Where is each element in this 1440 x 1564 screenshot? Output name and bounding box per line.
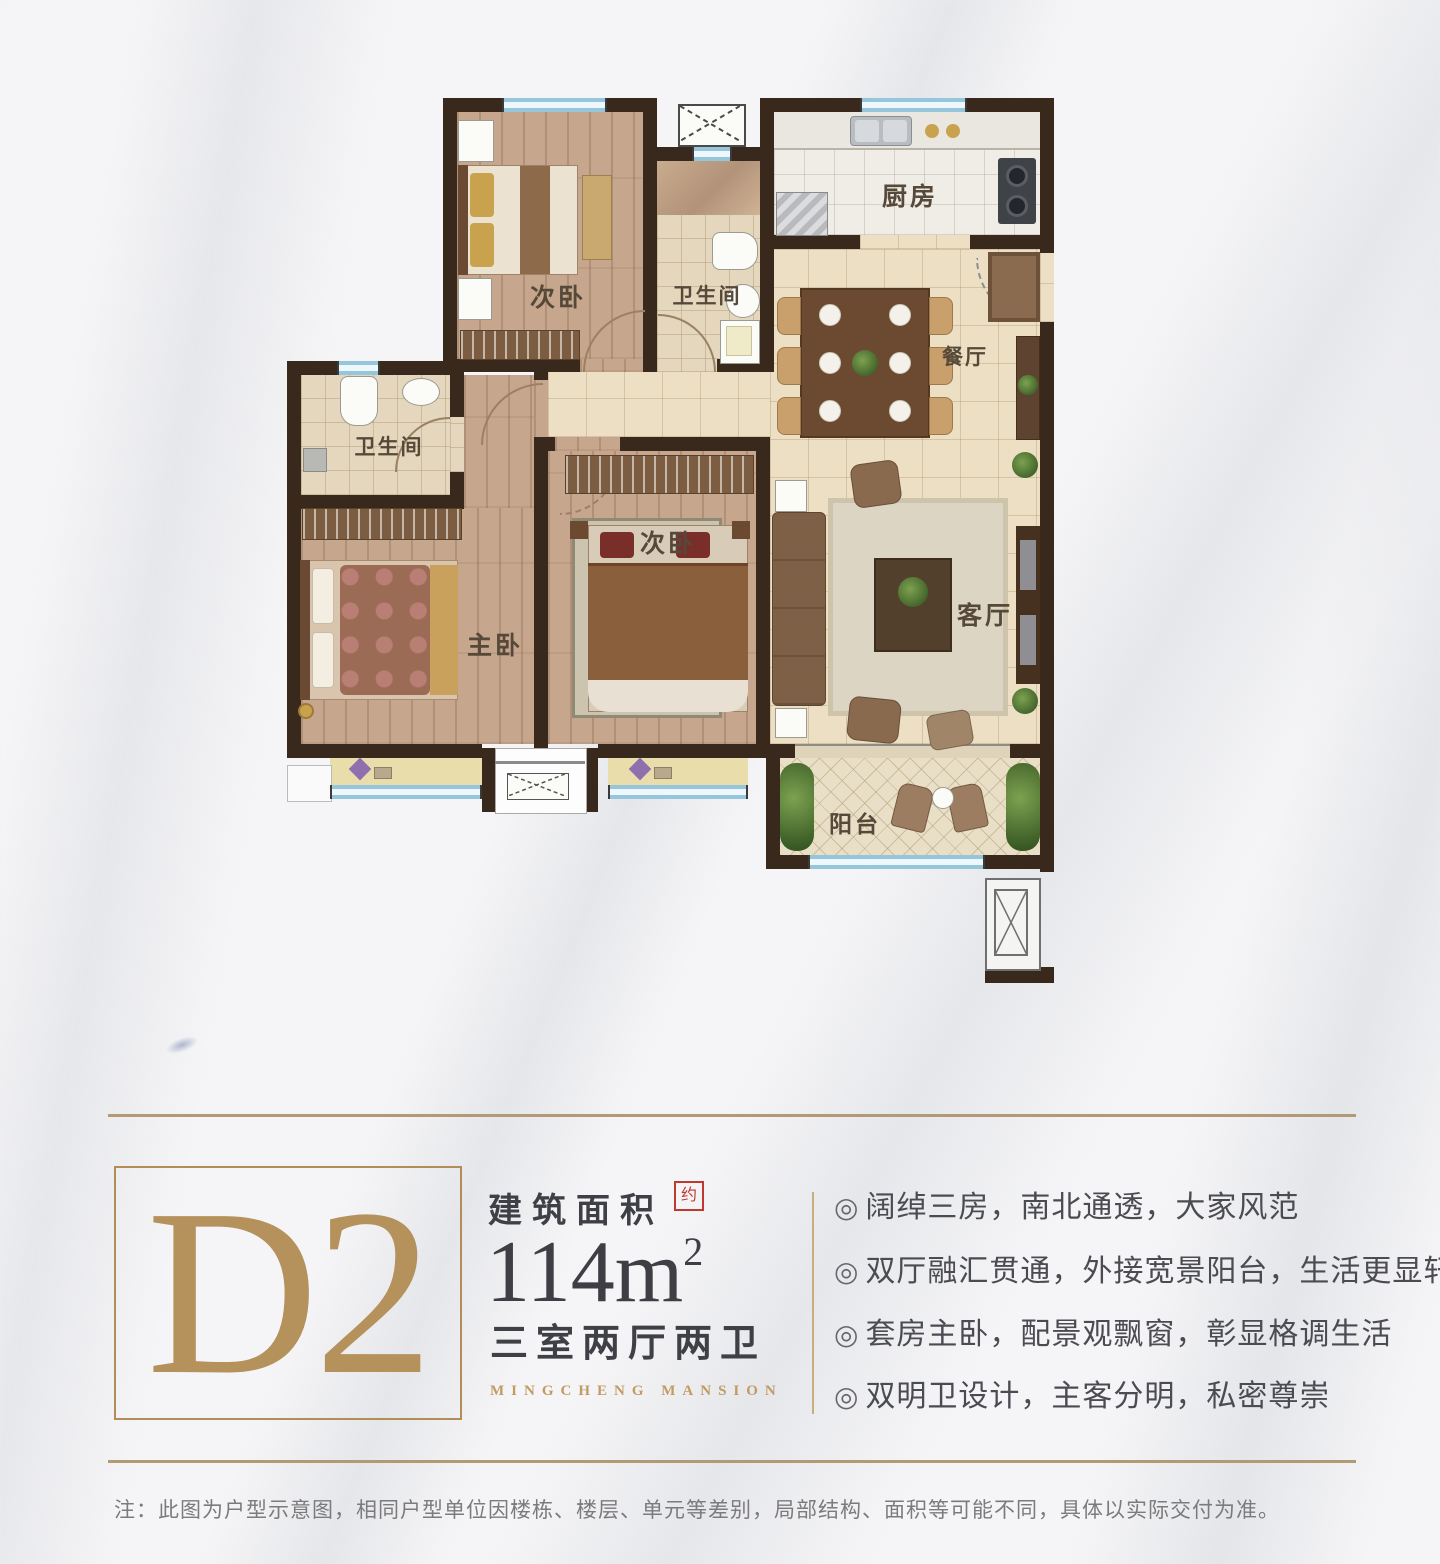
- side-table: [775, 480, 807, 512]
- project-name-en: MINGCHENG MANSION: [490, 1383, 783, 1400]
- wall: [534, 445, 548, 758]
- plant: [1018, 375, 1038, 395]
- area-number: 114m: [486, 1224, 683, 1321]
- balcony-threshold: [795, 744, 1010, 758]
- wall: [770, 744, 795, 758]
- pillow: [600, 532, 634, 558]
- wall: [643, 98, 657, 372]
- pillow: [470, 173, 494, 217]
- wall: [620, 437, 770, 451]
- bay-box-rail: [495, 761, 585, 764]
- shaft-top-icon: [678, 104, 746, 147]
- room-label-bathroom-master: 卫生间: [355, 431, 424, 461]
- pouf: [925, 708, 975, 751]
- bed-foot: [588, 680, 748, 712]
- unit-code: D2: [147, 1178, 430, 1408]
- x-box-icon: [987, 880, 1035, 965]
- bay-stool: [374, 767, 392, 779]
- plant: [1012, 688, 1038, 714]
- x-box-icon: [680, 106, 740, 141]
- bench: [582, 175, 612, 260]
- dining-chair: [777, 297, 801, 335]
- wall: [756, 437, 770, 758]
- bullet-icon: ◎: [834, 1319, 859, 1350]
- wardrobe: [302, 508, 462, 540]
- plate: [819, 304, 841, 326]
- plate: [889, 304, 911, 326]
- bed-runner: [520, 166, 550, 274]
- bay-x-icon: [507, 773, 569, 800]
- feature-text: 阔绰三房，南北通透，大家风范: [865, 1191, 1299, 1224]
- area-exponent: 2: [683, 1229, 703, 1274]
- divider-vertical: [812, 1192, 814, 1414]
- toilet: [340, 376, 378, 426]
- shower-tray-inner: [726, 326, 752, 356]
- divider-line-bottom: [108, 1460, 1356, 1463]
- entry-rug: [988, 252, 1040, 322]
- wall: [450, 472, 464, 509]
- toilet: [712, 232, 758, 270]
- nightstand: [458, 120, 494, 162]
- feature-item: ◎阔绰三房，南北通透，大家风范: [834, 1182, 1299, 1226]
- approx-seal: 约: [674, 1181, 704, 1211]
- divider-line-top: [108, 1114, 1356, 1117]
- wall: [766, 758, 780, 869]
- disclaimer-note: 注：此图为户型示意图，相同户型单位因楼栋、楼层、单元等差别，局部结构、面积等可能…: [114, 1494, 1280, 1524]
- window: [502, 98, 607, 112]
- bathroom-master-doorway-floor: [450, 417, 464, 472]
- wall: [450, 361, 464, 417]
- window: [608, 785, 748, 799]
- bay-window-right: [608, 758, 748, 785]
- pillow: [470, 223, 494, 267]
- kitchen-sink-basin: [883, 120, 907, 142]
- plant: [1012, 452, 1038, 478]
- window: [330, 785, 482, 799]
- nightstand: [458, 278, 492, 320]
- window: [692, 147, 732, 161]
- hallway-floor: [548, 372, 770, 437]
- bed-headboard: [300, 560, 310, 700]
- nightstand: [570, 521, 588, 539]
- dining-chair: [777, 347, 801, 385]
- wall: [287, 495, 464, 509]
- feature-item: ◎双厅融汇贯通，外接宽景阳台，生活更显轩昂: [834, 1246, 1440, 1290]
- dining-chair: [777, 397, 801, 435]
- kitchen-sink-basin: [855, 120, 879, 142]
- bullet-icon: ◎: [834, 1381, 859, 1412]
- bay-stool: [654, 767, 672, 779]
- plate: [889, 400, 911, 422]
- feature-text: 双厅融汇贯通，外接宽景阳台，生活更显轩昂: [865, 1255, 1440, 1288]
- plate: [819, 352, 841, 374]
- x-box-icon: [508, 774, 565, 796]
- floral-quilt: [340, 565, 430, 695]
- wall: [760, 98, 774, 372]
- centerpiece-plant: [852, 350, 878, 376]
- wardrobe: [460, 330, 580, 360]
- room-label-dining: 餐厅: [942, 341, 988, 371]
- stove-burner: [1006, 165, 1028, 187]
- wall: [443, 98, 457, 372]
- sink: [402, 378, 440, 406]
- wall: [760, 235, 860, 249]
- room-label-balcony: 阳台: [829, 805, 881, 839]
- sofa: [772, 512, 826, 706]
- dining-chair: [929, 297, 953, 335]
- wardrobe: [565, 455, 754, 494]
- layout-text: 三室两厅两卫: [490, 1312, 766, 1367]
- coffee-table-plant: [898, 577, 928, 607]
- balcony-plants: [1006, 763, 1040, 851]
- window-sill-left: [287, 765, 332, 802]
- balcony-table: [932, 787, 954, 809]
- window: [860, 98, 967, 112]
- marble-smudge: [164, 1033, 201, 1058]
- feature-text: 套房主卧，配景观飘窗，彰显格调生活: [865, 1318, 1392, 1351]
- wall: [287, 361, 301, 758]
- window: [337, 361, 380, 375]
- stove-burner: [1006, 195, 1028, 217]
- pillow: [312, 568, 334, 624]
- kitchen-doorway-floor: [860, 235, 970, 249]
- wall: [1040, 758, 1054, 872]
- wall: [1040, 322, 1054, 757]
- room-label-bedroom-north: 次卧: [530, 278, 586, 314]
- room-label-bathroom-guest: 卫生间: [673, 280, 742, 310]
- room-label-kitchen: 厨房: [882, 177, 938, 213]
- room-label-living: 客厅: [957, 596, 1013, 632]
- blanket: [588, 563, 748, 680]
- shaft-bottom-right-icon: [985, 878, 1041, 971]
- wall: [534, 372, 548, 380]
- nightstand: [732, 521, 750, 539]
- room-label-master: 主卧: [467, 626, 523, 662]
- plate: [819, 400, 841, 422]
- tv-cabinet-panel: [1020, 615, 1036, 665]
- bullet-icon: ◎: [834, 1192, 859, 1223]
- kitchen-jar: [946, 124, 960, 138]
- bathroom-guest-marble: [657, 161, 760, 215]
- floor-plan: 次卧 卫生间 厨房 餐厅 客厅 主卧 次卧 卫生间 阳台: [280, 85, 1060, 985]
- bullet-icon: ◎: [834, 1256, 859, 1287]
- balcony-plants: [780, 763, 814, 851]
- tv-cabinet-panel: [1020, 540, 1036, 590]
- wall: [598, 744, 770, 758]
- kitchen-jar: [925, 124, 939, 138]
- dining-chair: [929, 397, 953, 435]
- armchair: [849, 459, 903, 509]
- plate: [889, 352, 911, 374]
- side-table: [775, 708, 807, 738]
- wall: [287, 744, 482, 758]
- room-label-bedroom-middle: 次卧: [640, 524, 696, 560]
- pillow: [312, 632, 334, 688]
- window: [808, 855, 985, 869]
- bedside-lamp: [298, 703, 314, 719]
- wall: [1040, 98, 1054, 253]
- blanket: [430, 565, 458, 695]
- feature-item: ◎双明卫设计，主客分明，私密尊崇: [834, 1371, 1330, 1415]
- bedroom-middle-doorway-floor: [555, 437, 620, 451]
- entry-doorway-floor: [1040, 253, 1054, 322]
- fridge: [776, 192, 828, 236]
- armchair: [846, 695, 902, 744]
- wall: [482, 748, 495, 812]
- bed-headboard: [458, 165, 468, 275]
- feature-item: ◎套房主卧，配景观飘窗，彰显格调生活: [834, 1309, 1392, 1353]
- area-value: 114m2: [486, 1222, 703, 1323]
- unit-code-box: D2: [114, 1166, 462, 1420]
- feature-text: 双明卫设计，主客分明，私密尊崇: [865, 1380, 1330, 1413]
- washer: [303, 448, 327, 472]
